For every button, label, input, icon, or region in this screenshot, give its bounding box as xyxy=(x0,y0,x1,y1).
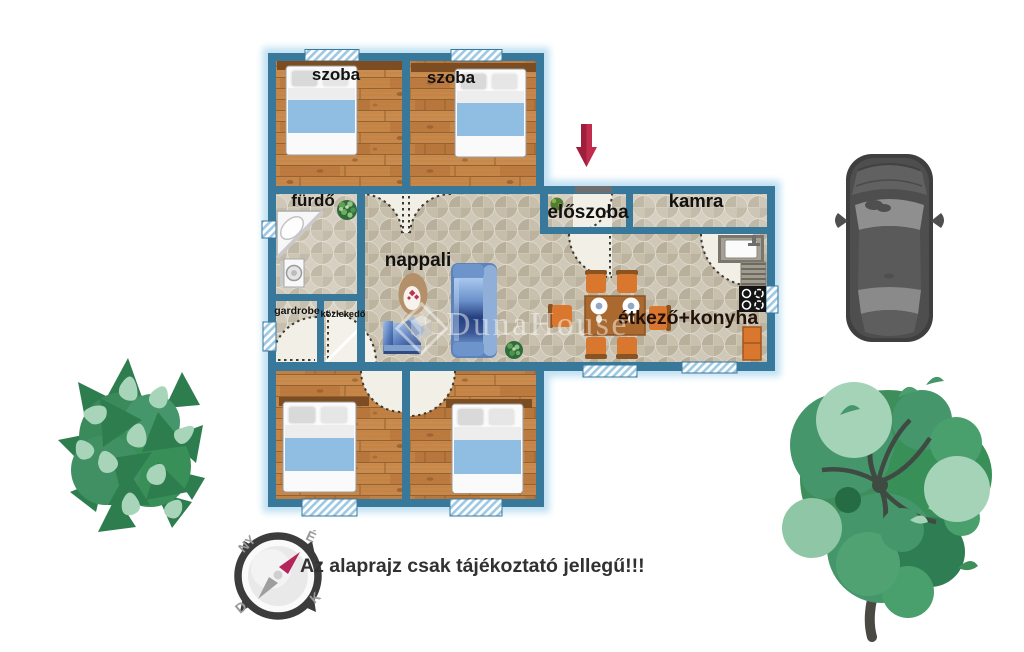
svg-text:Az alaprajz csak tájékoztató j: Az alaprajz csak tájékoztató jellegű!!! xyxy=(300,555,645,577)
svg-text:étkező+konyha: étkező+konyha xyxy=(618,307,759,329)
svg-text:nappali: nappali xyxy=(385,250,452,271)
svg-text:fürdő: fürdő xyxy=(291,191,334,210)
svg-text:kamra: kamra xyxy=(669,190,724,211)
svg-text:szoba: szoba xyxy=(427,68,476,87)
svg-text:DunaHouse: DunaHouse xyxy=(446,306,629,343)
svg-text:előszoba: előszoba xyxy=(547,202,629,223)
svg-text:közlekedő: közlekedő xyxy=(321,309,366,319)
svg-text:szoba: szoba xyxy=(312,65,361,84)
svg-text:gardrobe: gardrobe xyxy=(274,305,320,317)
